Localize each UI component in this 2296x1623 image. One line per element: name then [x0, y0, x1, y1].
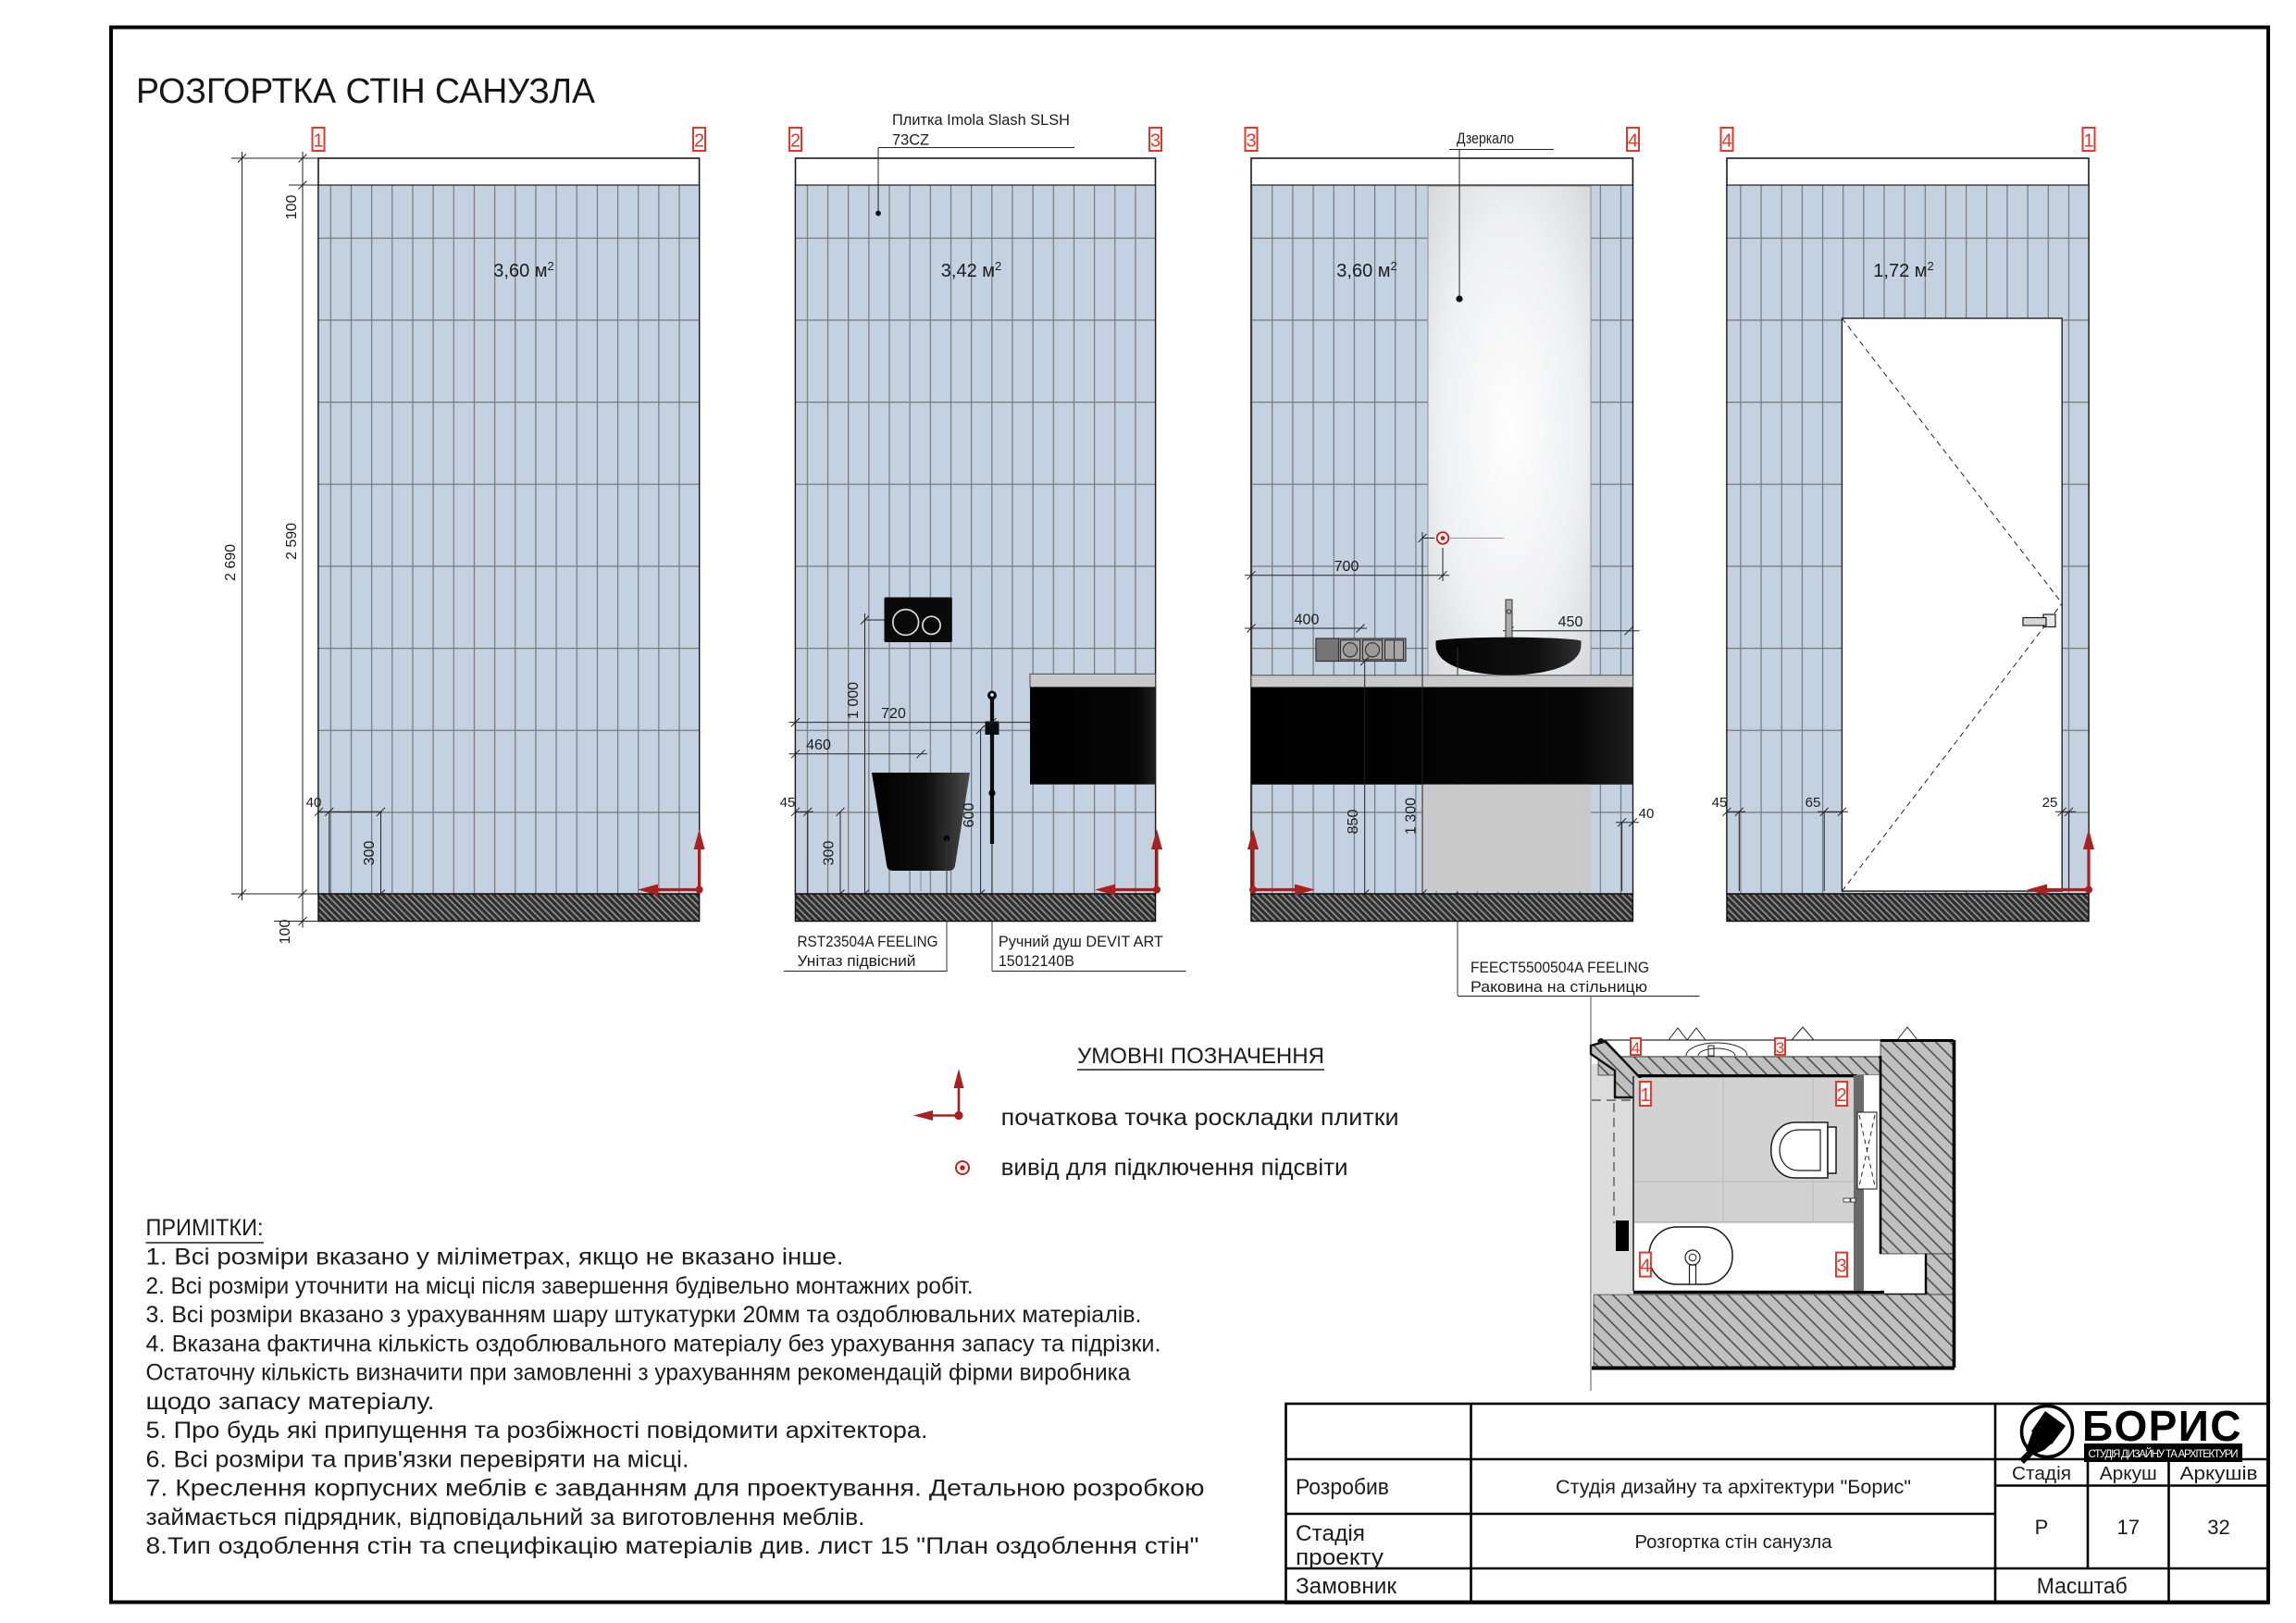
svg-text:Замовник: Замовник	[1296, 1574, 1396, 1599]
svg-text:Плитка Imola Slash SLSH: Плитка Imola Slash SLSH	[892, 112, 1070, 129]
svg-text:300: 300	[362, 841, 378, 866]
svg-text:600: 600	[962, 803, 977, 828]
svg-text:3: 3	[1246, 131, 1256, 152]
svg-text:займається підрядник, відповід: займається підрядник, відповідальний за …	[146, 1505, 865, 1530]
svg-text:45: 45	[1712, 795, 1728, 811]
svg-text:65: 65	[1806, 795, 1821, 811]
svg-text:450: 450	[1558, 614, 1583, 630]
svg-text:400: 400	[1295, 613, 1320, 628]
svg-text:2: 2	[694, 131, 704, 152]
svg-text:ПРИМІТКИ:: ПРИМІТКИ:	[146, 1215, 264, 1241]
svg-text:1. Всі розміри вказано у мілім: 1. Всі розміри вказано у міліметрах, якщ…	[146, 1245, 844, 1270]
svg-text:850: 850	[1346, 810, 1361, 835]
svg-text:2: 2	[1836, 1085, 1846, 1106]
svg-text:Остаточну кількість визначити: Остаточну кількість визначити при замовл…	[146, 1360, 1131, 1386]
svg-text:100: 100	[284, 195, 300, 220]
svg-text:Розробив: Розробив	[1296, 1475, 1389, 1500]
svg-text:1,72 м2: 1,72 м2	[1873, 259, 1933, 281]
svg-text:2 590: 2 590	[284, 523, 300, 560]
svg-text:25: 25	[2042, 795, 2058, 811]
svg-text:проекту: проекту	[1296, 1545, 1384, 1570]
svg-text:УМОВНІ ПОЗНАЧЕННЯ: УМОВНІ ПОЗНАЧЕННЯ	[1077, 1044, 1324, 1069]
svg-text:700: 700	[1334, 559, 1359, 575]
svg-text:3,60 м2: 3,60 м2	[1336, 259, 1396, 281]
svg-text:Аркушів: Аркушів	[2180, 1464, 2258, 1484]
svg-text:Студія дизайну та архітектури: Студія дизайну та архітектури "Борис"	[1556, 1477, 1911, 1498]
svg-text:4: 4	[1640, 1257, 1650, 1277]
svg-text:RST23504A FEELING: RST23504A FEELING	[798, 934, 938, 950]
svg-text:7. Креслення корпусних меблів: 7. Креслення корпусних меблів є завдання…	[146, 1476, 1205, 1502]
svg-text:РОЗГОРТКА СТІН САНУЗЛА: РОЗГОРТКА СТІН САНУЗЛА	[136, 72, 596, 111]
svg-text:2: 2	[790, 131, 800, 152]
svg-text:Масштаб: Масштаб	[2037, 1574, 2128, 1599]
svg-text:1: 1	[1640, 1085, 1650, 1106]
svg-text:45: 45	[780, 795, 796, 811]
svg-text:СТУДІЯ ДИЗАЙНУ ТА АРХІТЕКТУРИ: СТУДІЯ ДИЗАЙНУ ТА АРХІТЕКТУРИ	[2089, 1448, 2239, 1460]
svg-text:щодо запасу матеріалу.: щодо запасу матеріалу.	[146, 1389, 435, 1415]
svg-text:4: 4	[1628, 131, 1638, 152]
svg-text:1 000: 1 000	[846, 682, 862, 719]
svg-text:1: 1	[313, 131, 323, 152]
svg-text:6. Всі розміри та прив'язки пе: 6. Всі розміри та прив'язки перевіряти н…	[146, 1446, 689, 1472]
svg-text:2 690: 2 690	[223, 544, 239, 581]
svg-text:40: 40	[1639, 806, 1655, 822]
svg-text:3: 3	[1776, 1039, 1784, 1057]
svg-text:460: 460	[806, 737, 831, 753]
svg-text:вивід для підключення підсвіти: вивід для підключення підсвіти	[1001, 1155, 1348, 1181]
svg-text:3: 3	[1836, 1257, 1846, 1277]
svg-text:Ручний душ DEVIT ART: Ручний душ DEVIT ART	[999, 934, 1163, 950]
svg-text:73CZ: 73CZ	[892, 132, 929, 149]
svg-text:БОРИС: БОРИС	[2082, 1402, 2241, 1450]
svg-text:8.Тип оздоблення стін та специ: 8.Тип оздоблення стін та специфікацію ма…	[146, 1533, 1199, 1559]
svg-text:15012140B: 15012140B	[999, 953, 1074, 970]
svg-text:FEECT5500504A FEELING: FEECT5500504A FEELING	[1471, 960, 1649, 976]
svg-text:Р: Р	[2035, 1516, 2049, 1539]
svg-text:4: 4	[1721, 131, 1731, 152]
svg-text:Аркуш: Аркуш	[2100, 1464, 2157, 1484]
svg-text:3,60 м2: 3,60 м2	[493, 259, 553, 281]
svg-text:720: 720	[881, 706, 906, 722]
svg-text:4: 4	[1632, 1039, 1640, 1057]
svg-text:300: 300	[822, 841, 838, 866]
svg-text:Стадія: Стадія	[2012, 1464, 2071, 1484]
svg-text:100: 100	[278, 920, 293, 945]
svg-text:Раковина на стільницю: Раковина на стільницю	[1471, 979, 1647, 996]
svg-text:Унітаз підвісний: Унітаз підвісний	[798, 953, 916, 970]
svg-text:Стадія: Стадія	[1296, 1521, 1365, 1546]
svg-text:40: 40	[306, 795, 322, 811]
svg-text:Дзеркало: Дзеркало	[1457, 130, 1514, 147]
svg-text:1: 1	[2083, 131, 2093, 152]
svg-text:1 300: 1 300	[1404, 798, 1420, 835]
svg-text:5. Про будь які припущення та: 5. Про будь які припущення та розбіжност…	[146, 1418, 928, 1443]
svg-text:3. Всі розміри вказано з ураху: 3. Всі розміри вказано з урахуванням шар…	[146, 1302, 1142, 1328]
svg-text:32: 32	[2207, 1516, 2229, 1539]
svg-text:початкова точка роскладки плит: початкова точка роскладки плитки	[1001, 1105, 1399, 1131]
svg-text:2. Всі розміри уточнити на міс: 2. Всі розміри уточнити на місці після з…	[146, 1273, 974, 1299]
svg-text:Розгортка стін санузла: Розгортка стін санузла	[1635, 1532, 1833, 1553]
svg-text:3: 3	[1150, 131, 1160, 152]
svg-text:4. Вказана фактична кількість: 4. Вказана фактична кількість оздоблювал…	[146, 1331, 1161, 1357]
svg-text:3,42 м2: 3,42 м2	[941, 259, 1001, 281]
svg-text:17: 17	[2117, 1516, 2140, 1539]
